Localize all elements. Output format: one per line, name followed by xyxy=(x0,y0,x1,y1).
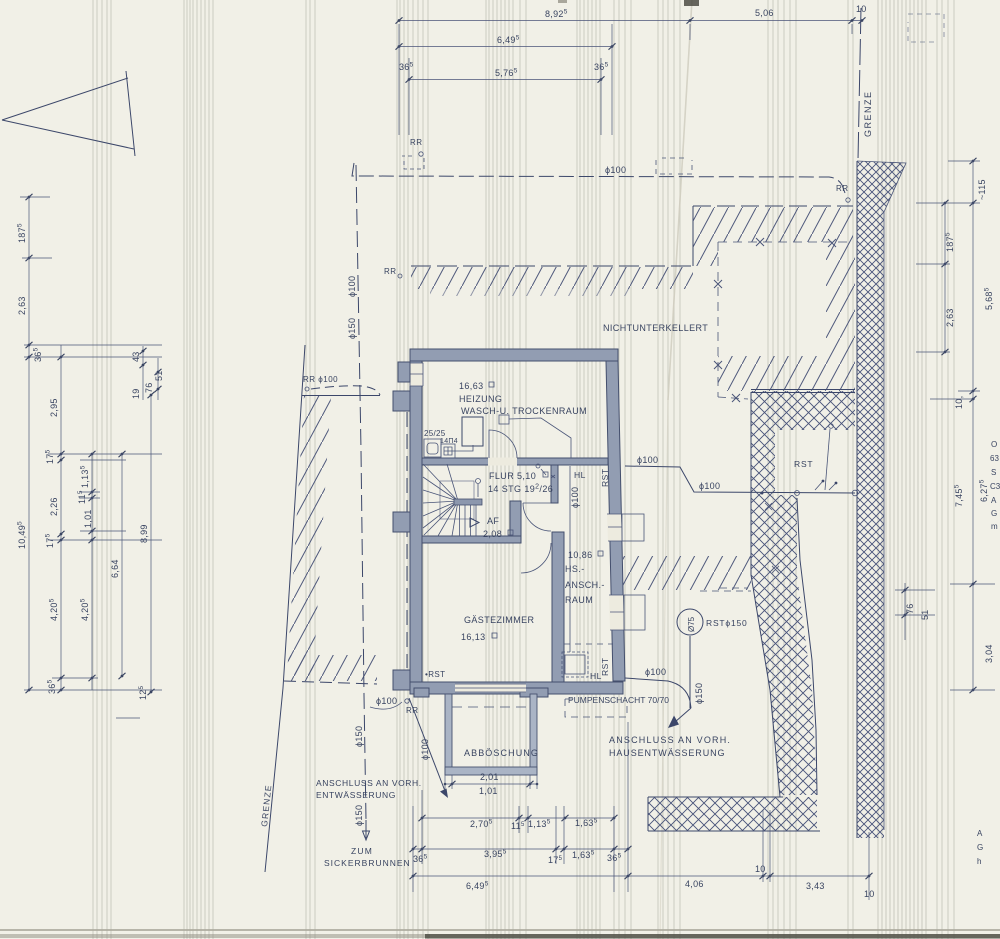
svg-text:10,495: 10,495 xyxy=(17,521,28,549)
svg-text:76: 76 xyxy=(144,382,154,393)
svg-text:76: 76 xyxy=(905,603,915,614)
svg-text:ϕ150: ϕ150 xyxy=(354,805,364,826)
svg-text:RST: RST xyxy=(600,658,610,677)
svg-text:HL: HL xyxy=(574,470,586,480)
svg-text:ϕ150: ϕ150 xyxy=(354,726,364,747)
svg-text:2,08: 2,08 xyxy=(483,529,502,539)
svg-text:ϕ150: ϕ150 xyxy=(694,683,704,704)
svg-text:1,01: 1,01 xyxy=(479,786,498,796)
svg-text:25/25: 25/25 xyxy=(424,429,446,438)
svg-text:RR: RR xyxy=(410,138,423,147)
svg-text:3,04: 3,04 xyxy=(984,644,994,663)
svg-text:Ø75: Ø75 xyxy=(687,616,696,632)
svg-text:ϕ100: ϕ100 xyxy=(420,739,430,760)
svg-text:•RST: •RST xyxy=(425,670,445,679)
svg-text:10,: 10, xyxy=(954,396,964,409)
svg-text:ϕ150: ϕ150 xyxy=(347,318,357,339)
svg-text:GRENZE: GRENZE xyxy=(863,90,873,137)
svg-text:2,26: 2,26 xyxy=(49,497,59,516)
svg-text:2,63: 2,63 xyxy=(17,296,27,315)
svg-text:ANSCH.-: ANSCH.- xyxy=(565,580,605,590)
svg-text:A: A xyxy=(991,496,997,505)
svg-text:S: S xyxy=(991,468,996,477)
svg-text:RAUM: RAUM xyxy=(565,595,593,605)
svg-text:ϕ100: ϕ100 xyxy=(699,481,720,491)
svg-text:AF: AF xyxy=(487,516,499,526)
svg-text:ZUM: ZUM xyxy=(351,846,373,856)
svg-text:RR: RR xyxy=(384,267,397,276)
svg-text:ϕ100: ϕ100 xyxy=(605,165,626,175)
svg-text:G: G xyxy=(977,843,983,852)
svg-text:RSTϕ150: RSTϕ150 xyxy=(706,618,748,628)
svg-text:2,63: 2,63 xyxy=(945,308,955,327)
svg-text:ϕ100: ϕ100 xyxy=(376,696,397,706)
svg-text:PUMPENSCHACHT 70/70: PUMPENSCHACHT 70/70 xyxy=(568,695,669,705)
svg-text:51: 51 xyxy=(154,370,164,381)
svg-text:4,06: 4,06 xyxy=(685,879,704,889)
svg-text:5,06: 5,06 xyxy=(755,8,774,18)
svg-text:ANSCHLUSS AN VORH.: ANSCHLUSS AN VORH. xyxy=(316,778,422,788)
svg-text:RST: RST xyxy=(794,459,813,469)
svg-text:10: 10 xyxy=(755,864,766,874)
svg-text:RST: RST xyxy=(600,469,610,488)
svg-text:ENTWÄSSERUNG: ENTWÄSSERUNG xyxy=(316,790,396,800)
svg-text:ϕ100: ϕ100 xyxy=(645,667,666,677)
svg-text:NICHTUNTERKELLERT: NICHTUNTERKELLERT xyxy=(603,323,708,333)
svg-text:ANSCHLUSS AN VORH.: ANSCHLUSS AN VORH. xyxy=(609,735,731,745)
svg-text:2,95: 2,95 xyxy=(49,398,59,417)
svg-text:~115: ~115 xyxy=(977,179,987,200)
svg-text:h: h xyxy=(977,857,981,866)
svg-text:ϕ100: ϕ100 xyxy=(347,276,357,297)
svg-text:A: A xyxy=(977,829,983,838)
svg-text:WASCH-U. TROCKENRAUM: WASCH-U. TROCKENRAUM xyxy=(461,406,587,416)
svg-text:HEIZUNG: HEIZUNG xyxy=(459,394,502,404)
svg-text:HS.-: HS.- xyxy=(565,564,585,574)
svg-text:FLUR 5,10: FLUR 5,10 xyxy=(489,471,536,481)
svg-text:63: 63 xyxy=(990,454,999,463)
svg-text:GÄSTEZIMMER: GÄSTEZIMMER xyxy=(464,615,535,625)
svg-text:16,63: 16,63 xyxy=(459,381,484,391)
svg-text:G: G xyxy=(991,509,997,518)
svg-text:SICKERBRUNNEN: SICKERBRUNNEN xyxy=(324,858,411,868)
svg-text:1,01: 1,01 xyxy=(83,509,93,528)
svg-text:m: m xyxy=(991,522,998,531)
svg-text:ABBÖSCHUNG: ABBÖSCHUNG xyxy=(464,748,539,758)
svg-text:C3: C3 xyxy=(990,482,1000,491)
svg-text:16,13: 16,13 xyxy=(461,632,486,642)
svg-text:HAUSENTWÄSSERUNG: HAUSENTWÄSSERUNG xyxy=(609,748,725,758)
svg-text:ϕ100: ϕ100 xyxy=(637,455,658,465)
svg-text:10,86: 10,86 xyxy=(568,550,593,560)
svg-text:19: 19 xyxy=(131,388,141,399)
svg-text:ϕ100: ϕ100 xyxy=(570,487,580,508)
svg-text:14 STG 192/26: 14 STG 192/26 xyxy=(488,484,553,495)
svg-text:6,64: 6,64 xyxy=(110,559,120,578)
svg-text:O: O xyxy=(991,440,997,449)
svg-text:RR: RR xyxy=(836,184,849,193)
svg-text:3,43: 3,43 xyxy=(806,881,825,891)
svg-text:14Π4: 14Π4 xyxy=(440,438,458,445)
svg-text:2,01: 2,01 xyxy=(480,772,499,782)
svg-text:RR ϕ100: RR ϕ100 xyxy=(303,375,338,384)
